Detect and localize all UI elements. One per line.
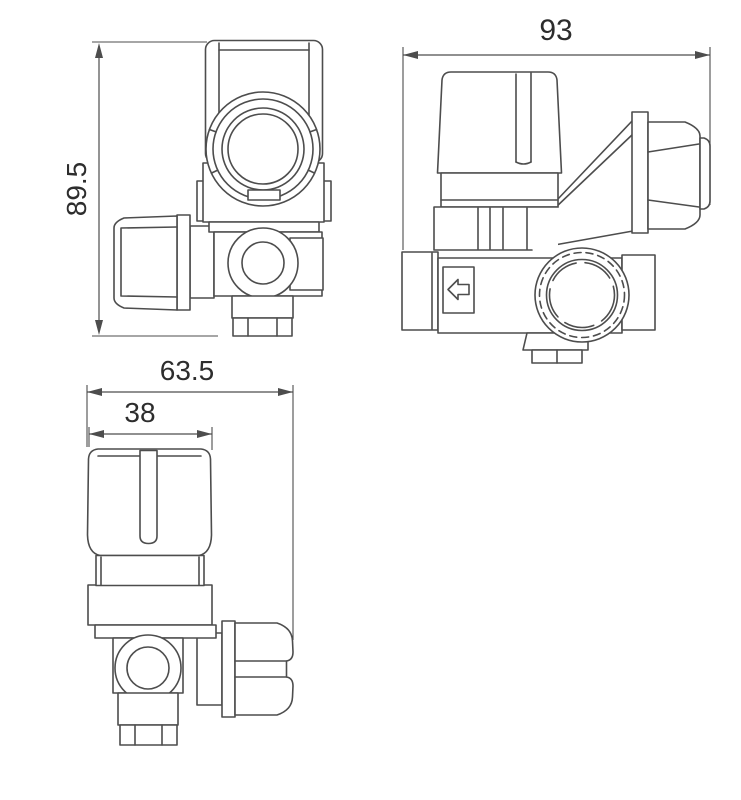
dimension-label-width: 93 [539,14,572,47]
body-band [88,585,212,625]
knob-ring-outer [206,92,320,206]
side-port-outer [228,228,298,298]
arrowhead-down [95,320,103,335]
side-port-outer [115,635,181,701]
fitting-flange [222,621,235,717]
knob-front-view [88,449,212,586]
bottom-outlet [232,296,293,318]
technical-drawing-canvas: 89.5 [0,0,741,800]
dimension-label-height: 89.5 [61,162,92,217]
outlet-nut [648,122,700,229]
knob-side-view [434,72,562,250]
front-view: 63.5 38 [87,355,293,745]
side-view: 93 [402,14,710,363]
arrowhead-right [695,51,710,59]
arrowhead-right [278,388,293,396]
dimension-label-knob-width: 38 [124,397,155,428]
ring-notch-tab [248,190,280,200]
knob-top-view [206,41,323,207]
bonnet-neck [96,556,204,586]
knob-outline-side [438,72,562,173]
fitting-nut [235,623,293,715]
fitting-connector [197,633,222,705]
arrowhead-left [87,388,102,396]
dimension-label-overall-width: 63.5 [160,355,215,386]
fitting-connector [190,226,214,298]
bonnet-neck [441,173,558,207]
body-top-view [214,228,323,336]
union-ring-nut [535,248,629,342]
arrowhead-up [95,43,103,58]
arrowhead-right [197,430,212,438]
outlet-endcap [700,138,710,209]
fitting-flange [177,215,190,310]
outlet-flange [632,112,648,233]
dimension-knob-38: 38 [89,397,212,450]
arrowhead-left [403,51,418,59]
side-fitting-top-view [114,215,214,310]
bottom-outlet [118,693,178,725]
arrowhead-left [89,430,104,438]
body-side-view [402,248,655,363]
valve-drawing-svg: 89.5 [0,0,741,800]
knob-slot [140,451,157,544]
top-view: 89.5 [61,41,331,337]
